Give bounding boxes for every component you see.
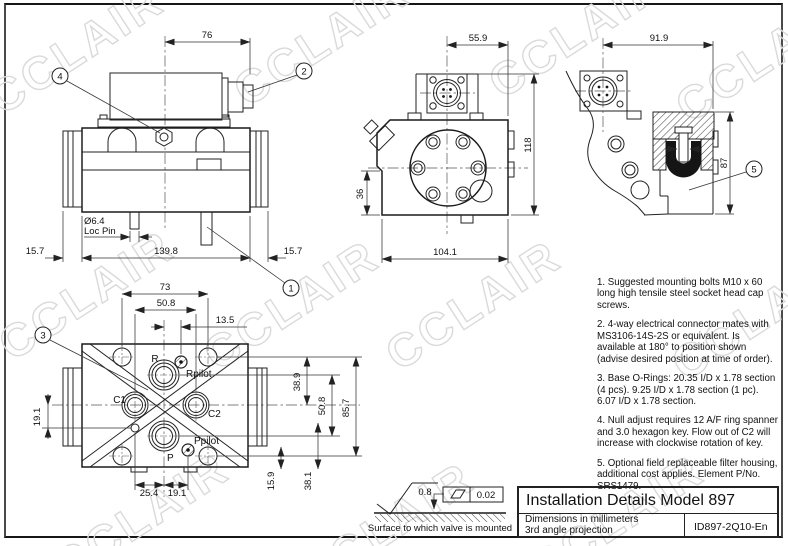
balloon-2-number: 2	[301, 67, 306, 78]
dim-55-9: 55.9	[469, 33, 488, 44]
dim-19-1-bottom: 19.1	[168, 488, 187, 499]
dim-36: 36	[355, 189, 366, 200]
port-label-p: P	[167, 453, 174, 464]
loc-pin-label: Loc Pin	[84, 226, 116, 237]
dim-25-4: 25.4	[140, 488, 159, 499]
balloon-1-number: 1	[288, 284, 293, 295]
balloon-4: 4	[52, 68, 68, 84]
dim-15-7-right: 15.7	[284, 246, 303, 257]
balloon-2: 2	[296, 63, 312, 79]
balloon-3-number: 3	[40, 331, 45, 342]
note-4: 4. Null adjust requires 12 A/F ring span…	[597, 415, 780, 449]
roughness-value: 0.8	[418, 487, 431, 498]
dim-19-1-left: 19.1	[32, 408, 43, 427]
notes-panel: 1. Suggested mounting bolts M10 x 60 lon…	[597, 277, 780, 500]
dim-104-1: 104.1	[433, 247, 457, 258]
balloon-3: 3	[35, 327, 51, 343]
watermark-text: CCLAIR	[376, 229, 570, 380]
balloon-1: 1	[283, 280, 299, 296]
port-label-c1: C1	[113, 395, 126, 406]
note-1: 1. Suggested mounting bolts M10 x 60 lon…	[597, 277, 780, 311]
dim-73: 73	[160, 282, 171, 293]
balloon-4-number: 4	[57, 72, 62, 83]
port-label-r: R	[151, 354, 158, 365]
dim-87: 87	[719, 158, 730, 169]
projection-note: 3rd angle projection	[525, 526, 684, 537]
units-and-projection: Dimensions in millimeters 3rd angle proj…	[519, 514, 685, 536]
watermark-text: CCLAIR	[0, 0, 173, 124]
dim-118: 118	[523, 137, 534, 152]
note-2: 2. 4-way electrical connector mates with…	[597, 319, 780, 365]
dim-15-9: 15.9	[266, 472, 277, 491]
port-label-ppilot: Ppilot	[194, 436, 219, 447]
dim-38-9: 38.9	[292, 373, 303, 392]
dim-85-7: 85.7	[341, 399, 352, 418]
port-label-rpilot: Rpilot	[186, 369, 212, 380]
dim-13-5: 13.5	[216, 315, 235, 326]
doc-number: ID897-2Q10-En	[685, 514, 777, 536]
title-block: Installation Details Model 897 Dimension…	[517, 486, 779, 538]
surface-caption: Surface to which valve is mounted	[368, 523, 512, 534]
note-3: 3. Base O-Rings: 20.35 I/D x 1.78 sectio…	[597, 373, 780, 407]
dim-139-8: 139.8	[154, 246, 178, 257]
drawing-title: Installation Details Model 897	[519, 488, 777, 514]
dim-38-1: 38.1	[303, 472, 314, 491]
watermark-text: CCLAIR	[0, 219, 183, 370]
flatness-value: 0.02	[477, 490, 496, 501]
dim-50-8-right: 50.8	[317, 397, 328, 416]
dim-50-8-top: 50.8	[157, 298, 176, 309]
dim-76: 76	[202, 30, 213, 41]
port-label-c2: C2	[208, 409, 221, 420]
balloon-5: 5	[746, 161, 762, 177]
balloon-5-number: 5	[751, 165, 756, 176]
dim-91-9: 91.9	[650, 33, 669, 44]
dim-15-7-left: 15.7	[26, 246, 45, 257]
